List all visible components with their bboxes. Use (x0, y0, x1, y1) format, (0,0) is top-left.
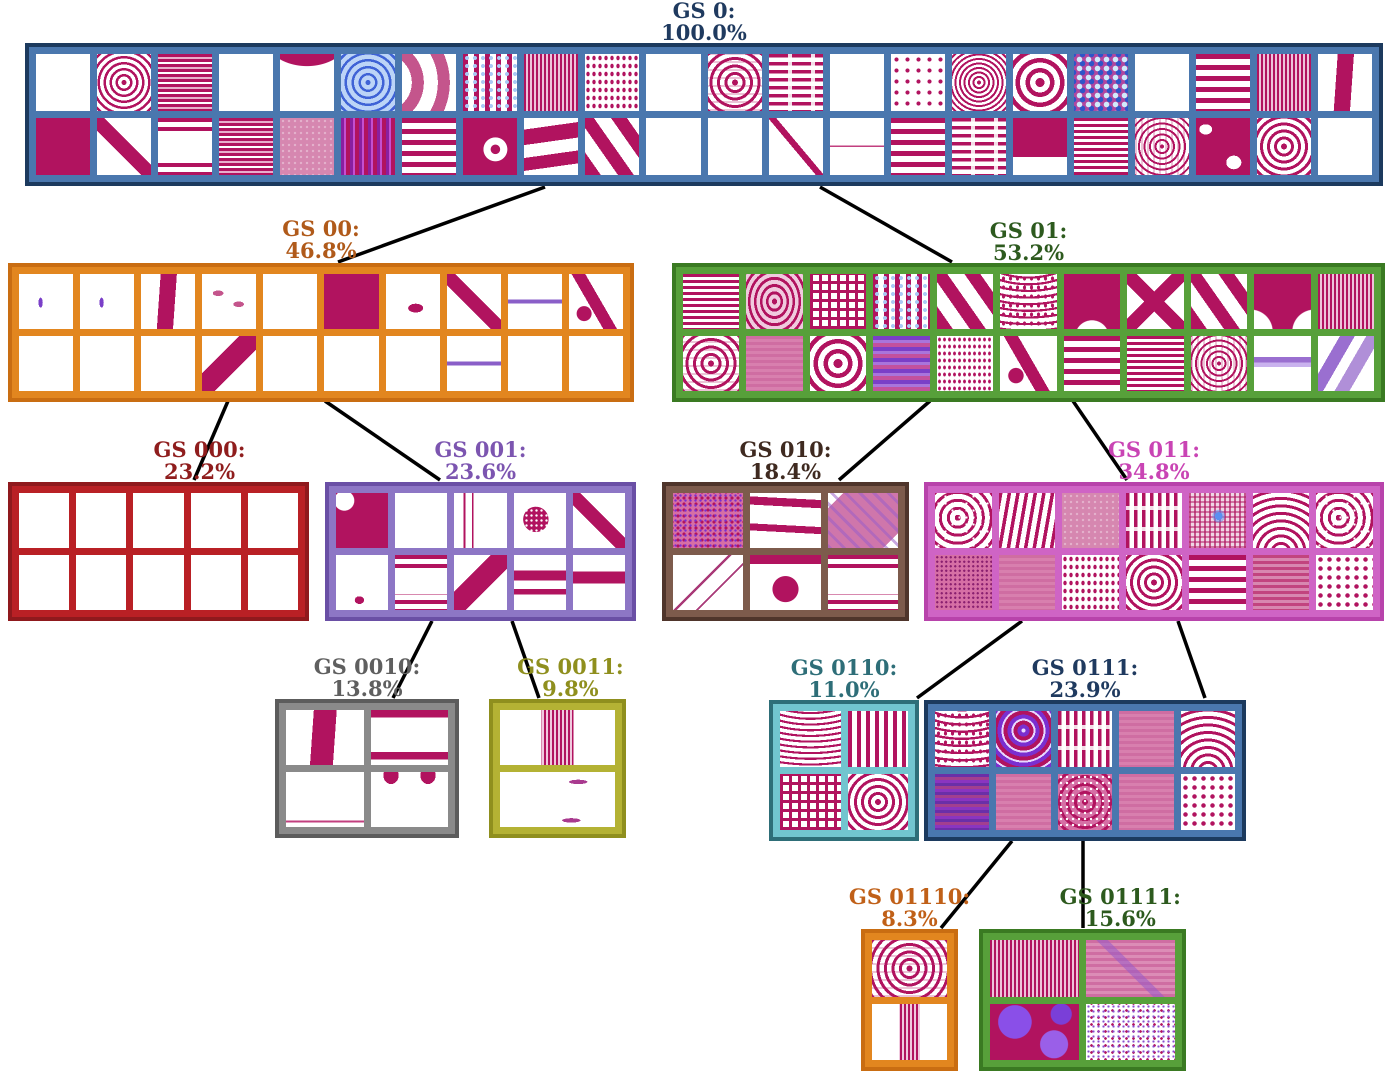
pattern-tile-wave_bottom (395, 493, 447, 548)
node-label-gs01110: GS 01110: 8.3% (849, 886, 970, 931)
pattern-tile-diag_band (202, 336, 256, 391)
pattern-tile-vstripes (848, 711, 909, 767)
pattern-tile-speck (80, 274, 134, 329)
node-label-gs0110: GS 0110: 11.0% (791, 657, 898, 702)
pattern-tile-blank (191, 555, 241, 610)
pattern-tile-pink_haze (999, 555, 1056, 610)
pattern-tile-diag_bold (937, 274, 993, 329)
cluster-node-gs01: GS 01: 53.2% (672, 263, 1385, 402)
pattern-grid-gs0110 (773, 704, 915, 837)
pattern-tile-vertical_wave (1318, 54, 1372, 111)
pattern-grid-gs0011 (493, 703, 622, 834)
cluster-node-gs000: GS 000: 23.2% (8, 482, 309, 621)
pattern-tile-vstripes_purple (341, 118, 395, 175)
pattern-tile-diag_band (454, 555, 506, 610)
pattern-tile-vertical_wave (286, 710, 364, 765)
edge-gs0-gs00 (338, 187, 545, 262)
node-name: GS 001: (435, 439, 527, 462)
pattern-tile-fingerprint (1181, 711, 1235, 767)
pattern-tile-blank (508, 336, 562, 391)
pattern-tile-blank (76, 493, 126, 548)
pattern-grid-gs0111 (928, 704, 1242, 837)
pattern-tile-purple_blobs (990, 1004, 1079, 1061)
pattern-tile-blank (19, 493, 69, 548)
pattern-tile-hbars_mid (514, 555, 566, 610)
pattern-tile-wave_top (280, 54, 334, 111)
pattern-tile-circle_bar (750, 555, 820, 610)
pattern-tile-blank (219, 54, 273, 111)
pattern-tile-diag_lines_thin (673, 555, 743, 610)
pattern-tile-bullseye_bold (1013, 54, 1067, 111)
pattern-tile-pink_haze_diag (1086, 940, 1175, 997)
node-name: GS 010: (740, 439, 832, 462)
pattern-tile-blank (324, 336, 378, 391)
pattern-tile-speck (19, 274, 73, 329)
cluster-node-gs0011: GS 0011: 9.8% (489, 699, 626, 838)
pattern-tile-h_maze (952, 118, 1006, 175)
node-percent: 18.4% (740, 461, 832, 484)
pattern-grid-gs001 (329, 486, 632, 617)
pattern-tile-dot_rows (1062, 555, 1119, 610)
node-percent: 13.8% (314, 678, 421, 701)
pattern-tile-oval_rings (746, 274, 802, 329)
pattern-tile-solid_band (1013, 118, 1067, 175)
node-name: GS 0111: (1032, 657, 1139, 680)
pattern-tile-hstripes_bold (1196, 54, 1250, 111)
pattern-tile-dot_field (1316, 555, 1373, 610)
pattern-tile-speck_dot (336, 555, 388, 610)
pattern-tile-blue_dot_columns (463, 54, 517, 111)
pattern-tile-blank (646, 118, 700, 175)
pattern-tile-blue_bullseye (341, 54, 395, 111)
node-name: GS 01110: (849, 886, 970, 909)
pattern-tile-solid (36, 118, 90, 175)
node-name: GS 0110: (791, 657, 898, 680)
pattern-tile-solid_blobs (1196, 118, 1250, 175)
pattern-tile-dashes (202, 274, 256, 329)
cluster-node-gs0111: GS 0111: 23.9% (924, 700, 1246, 841)
pattern-tile-dot_field (1181, 774, 1235, 830)
pattern-tile-hstripes_edges (395, 555, 447, 610)
pattern-tile-blank (36, 54, 90, 111)
pattern-grid-gs01110 (865, 933, 954, 1067)
pattern-tile-maze (780, 774, 841, 830)
pattern-tile-diag_bold (585, 118, 639, 175)
pattern-grid-gs0 (29, 47, 1379, 182)
pattern-tile-vband_striped (500, 710, 615, 765)
pattern-tile-speckle_white (1086, 1004, 1175, 1061)
pattern-tile-dot_rows (585, 54, 639, 111)
pattern-tile-solid_hole (336, 493, 388, 548)
pattern-tile-rings_fine (952, 54, 1006, 111)
pattern-tile-dots_texture (673, 493, 743, 548)
pattern-tile-purple_bullseye (996, 711, 1050, 767)
pattern-grid-gs01111 (983, 933, 1182, 1067)
pattern-tile-pink_haze (996, 774, 1050, 830)
pattern-tile-sq_rings_fine (1191, 336, 1247, 391)
cluster-node-gs001: GS 001: 23.6% (325, 482, 636, 621)
pattern-tile-blank (1318, 118, 1372, 175)
pattern-tile-hstripes_bold (1064, 336, 1120, 391)
pattern-tile-hband_purple (1254, 336, 1310, 391)
pattern-tile-blank (248, 493, 298, 548)
pattern-tile-wavy_bands (750, 493, 820, 548)
pattern-grid-gs010 (666, 486, 905, 617)
pattern-tile-v_curves (454, 493, 506, 548)
pattern-tile-hline_mid (830, 118, 884, 175)
cluster-node-gs0: GS 0: 100.0% (25, 43, 1383, 186)
node-label-gs00: GS 00: 46.8% (282, 218, 359, 263)
node-name: GS 0: (661, 0, 747, 22)
node-percent: 34.8% (1108, 461, 1200, 484)
pattern-tile-maze (810, 274, 866, 329)
pattern-tile-dots_sparse (891, 54, 945, 111)
pattern-tile-hstripes_edges (158, 118, 212, 175)
pattern-tile-wave_blobs (524, 118, 578, 175)
pattern-tile-sq_rings (872, 940, 947, 997)
node-percent: 8.3% (849, 908, 970, 931)
pattern-tile-pink_texture (1062, 493, 1119, 548)
pattern-tile-diag_bar (447, 274, 501, 329)
pattern-tile-arcs (780, 711, 841, 767)
pattern-tile-hstripes_bold (1189, 555, 1246, 610)
edge-gs011-gs0110 (917, 621, 1022, 698)
pattern-tile-arcs_dots (935, 711, 989, 767)
pattern-tile-comma (386, 274, 440, 329)
pattern-grid-gs0010 (279, 703, 455, 834)
pattern-tile-hstripes_haze (1253, 555, 1310, 610)
pattern-tile-blank (133, 555, 183, 610)
pattern-tile-diag_bold (1191, 274, 1247, 329)
node-label-gs011: GS 011: 34.8% (1108, 439, 1200, 484)
edge-gs01-gs010 (839, 401, 930, 480)
edge-gs0-gs01 (820, 187, 952, 262)
pattern-tile-hstripes_edges (828, 555, 898, 610)
pattern-tile-blank (80, 336, 134, 391)
node-label-gs010: GS 010: 18.4% (740, 439, 832, 484)
pattern-tile-vstripes_fine (1318, 274, 1374, 329)
node-percent: 9.8% (517, 678, 624, 701)
node-percent: 23.6% (435, 461, 527, 484)
pattern-tile-solid (324, 274, 378, 329)
node-label-gs01111: GS 01111: 15.6% (1060, 886, 1181, 931)
pattern-tile-purple_haze (873, 336, 929, 391)
pattern-tile-blank (386, 336, 440, 391)
node-name: GS 0011: (517, 656, 624, 679)
node-name: GS 000: (154, 439, 246, 462)
pattern-tile-blue_camo (1074, 54, 1128, 111)
node-percent: 23.9% (1032, 679, 1139, 702)
pattern-tile-hline_bottom (286, 772, 364, 827)
node-name: GS 01: (990, 220, 1067, 243)
pattern-tile-hstripes (683, 274, 739, 329)
pattern-tile-blank (19, 336, 73, 391)
pattern-tile-notch (1064, 274, 1120, 329)
pattern-tile-pink_haze (1119, 774, 1173, 830)
pattern-tile-blank (646, 54, 700, 111)
pattern-tile-sq_rings (683, 336, 739, 391)
pattern-grid-gs01 (676, 267, 1381, 398)
edge-gs00-gs001 (325, 401, 440, 480)
pattern-tile-blank (76, 555, 126, 610)
cluster-node-gs011: GS 011: 34.8% (924, 482, 1384, 621)
cluster-node-gs0110: GS 0110: 11.0% (769, 700, 919, 841)
pattern-tile-blank (263, 336, 317, 391)
pattern-tile-diag_texture (828, 493, 898, 548)
pattern-tile-bell (1254, 274, 1310, 329)
node-label-gs0011: GS 0011: 9.8% (517, 656, 624, 701)
pattern-tile-diag_bar (573, 493, 625, 548)
pattern-tile-grid_blue (1189, 493, 1246, 548)
pattern-grid-gs00 (12, 267, 630, 398)
pattern-tile-hstripes (1127, 336, 1183, 391)
pattern-tile-snake (569, 274, 623, 329)
pattern-tile-vstripes_fine (1257, 54, 1311, 111)
pattern-tile-bullseye (848, 774, 909, 830)
pattern-tile-hstripes_bold (402, 118, 456, 175)
pattern-tile-fine_dots (935, 555, 992, 610)
pattern-grid-gs011 (928, 486, 1380, 617)
pattern-tile-purple_line (508, 274, 562, 329)
cluster-tree-figure: GS 0: 100.0% GS 00: 46.8% GS 01: 53.2% G… (0, 0, 1390, 1073)
edge-gs011-gs0111 (1178, 621, 1205, 698)
pattern-tile-diag_bands_purple (1318, 336, 1374, 391)
pattern-tile-hstripes_pink (219, 118, 273, 175)
pattern-tile-vstripes_fine (524, 54, 578, 111)
node-name: GS 00: (282, 218, 359, 241)
pattern-tile-diag_dots (937, 336, 993, 391)
pattern-tile-bullseye (1126, 555, 1183, 610)
pattern-tile-sq_rings (708, 54, 762, 111)
node-label-gs000: GS 000: 23.2% (154, 439, 246, 484)
pattern-tile-v_maze (1058, 711, 1112, 767)
node-name: GS 01111: (1060, 886, 1181, 909)
cluster-node-gs01111: GS 01111: 15.6% (979, 929, 1186, 1071)
pattern-tile-pink_haze (1119, 711, 1173, 767)
cluster-node-gs010: GS 010: 18.4% (662, 482, 909, 621)
pattern-tile-blank (263, 274, 317, 329)
pattern-tile-blank (569, 336, 623, 391)
pattern-tile-vertical_wave (141, 274, 195, 329)
pattern-tile-rings (97, 54, 151, 111)
node-percent: 11.0% (791, 679, 898, 702)
pattern-tile-hstripes_pink (158, 54, 212, 111)
pattern-tile-blank (1135, 54, 1189, 111)
pattern-tile-diag_bar (97, 118, 151, 175)
pattern-tile-blue_dot_columns (873, 274, 929, 329)
pattern-tile-blank (248, 555, 298, 610)
node-label-gs0111: GS 0111: 23.9% (1032, 657, 1139, 702)
pattern-tile-sq_rings_dots (1058, 774, 1112, 830)
node-label-gs01: GS 01: 53.2% (990, 220, 1067, 265)
node-name: GS 0010: (314, 656, 421, 679)
pattern-tile-blank (133, 493, 183, 548)
pattern-tile-maze_dots (1316, 493, 1373, 548)
pattern-tile-horns (371, 772, 449, 827)
pattern-grid-gs000 (12, 486, 305, 617)
node-name: GS 011: (1108, 439, 1200, 462)
pattern-tile-hbar (573, 555, 625, 610)
pattern-tile-solid_dot (463, 118, 517, 175)
pattern-tile-bullseye (1257, 118, 1311, 175)
pattern-tile-arcs_dots (1000, 274, 1056, 329)
pattern-tile-snake (1000, 336, 1056, 391)
pattern-tile-maze_dots (935, 493, 992, 548)
pattern-tile-blank (19, 555, 69, 610)
pattern-tile-chevron (402, 54, 456, 111)
cluster-node-gs0010: GS 0010: 13.8% (275, 699, 459, 838)
pattern-tile-purple_line (447, 336, 501, 391)
pattern-tile-vband_striped (872, 1004, 947, 1061)
node-percent: 46.8% (282, 240, 359, 263)
pattern-tile-blank (830, 54, 884, 111)
pattern-tile-hbars_tb (371, 710, 449, 765)
node-label-gs001: GS 001: 23.6% (435, 439, 527, 484)
node-percent: 100.0% (661, 22, 747, 45)
pattern-tile-diag_bar_thin (769, 118, 823, 175)
pattern-tile-hstripes (1074, 118, 1128, 175)
pattern-tile-pink_haze (746, 336, 802, 391)
pattern-tile-blank (191, 493, 241, 548)
cluster-node-gs00: GS 00: 46.8% (8, 263, 634, 402)
pattern-tile-pink_texture (280, 118, 334, 175)
pattern-tile-blank (141, 336, 195, 391)
pattern-tile-v_maze (1126, 493, 1183, 548)
node-label-gs0010: GS 0010: 13.8% (314, 656, 421, 701)
node-percent: 15.6% (1060, 908, 1181, 931)
cluster-node-gs01110: GS 01110: 8.3% (861, 929, 958, 1071)
pattern-tile-diag_x (1127, 274, 1183, 329)
pattern-tile-h_maze (769, 54, 823, 111)
pattern-tile-specks (500, 772, 615, 827)
pattern-tile-bullseye_bold (810, 336, 866, 391)
pattern-tile-blank (708, 118, 762, 175)
pattern-tile-blob_dots (514, 493, 566, 548)
pattern-tile-sq_rings_fine (1135, 118, 1189, 175)
node-label-gs0: GS 0: 100.0% (661, 0, 747, 45)
pattern-tile-purple_stripes (935, 774, 989, 830)
pattern-tile-fingerprint (1253, 493, 1310, 548)
pattern-tile-vstripes_fine (990, 940, 1079, 997)
node-percent: 53.2% (990, 242, 1067, 265)
pattern-tile-wavestripes (999, 493, 1056, 548)
node-percent: 23.2% (154, 461, 246, 484)
pattern-tile-hstripes_bold (891, 118, 945, 175)
